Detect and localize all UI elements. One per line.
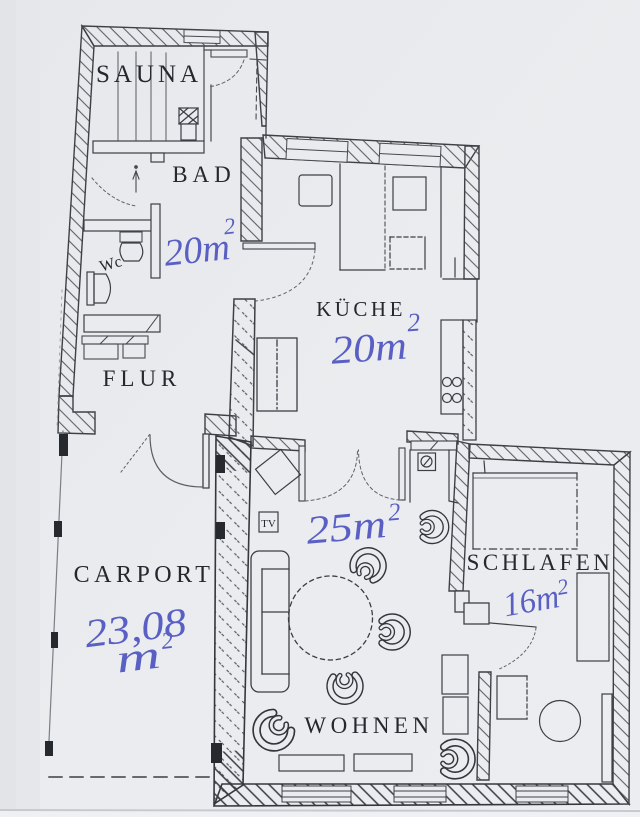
- svg-text:CARPORT: CARPORT: [74, 562, 215, 588]
- svg-text:BAD: BAD: [172, 162, 236, 187]
- svg-text:TV: TV: [261, 518, 276, 530]
- svg-text:2: 2: [406, 307, 421, 337]
- svg-text:SCHLAFEN: SCHLAFEN: [467, 550, 614, 575]
- svg-text:20m: 20m: [162, 226, 232, 275]
- svg-text:SAUNA: SAUNA: [96, 61, 202, 88]
- svg-text:m: m: [113, 631, 162, 681]
- svg-text:25m: 25m: [304, 501, 388, 553]
- svg-text:WOHNEN: WOHNEN: [304, 713, 433, 738]
- svg-text:FLUR: FLUR: [103, 366, 182, 391]
- svg-text:KÜCHE: KÜCHE: [316, 297, 406, 321]
- svg-text:20m: 20m: [329, 322, 408, 372]
- svg-text:2: 2: [387, 499, 402, 527]
